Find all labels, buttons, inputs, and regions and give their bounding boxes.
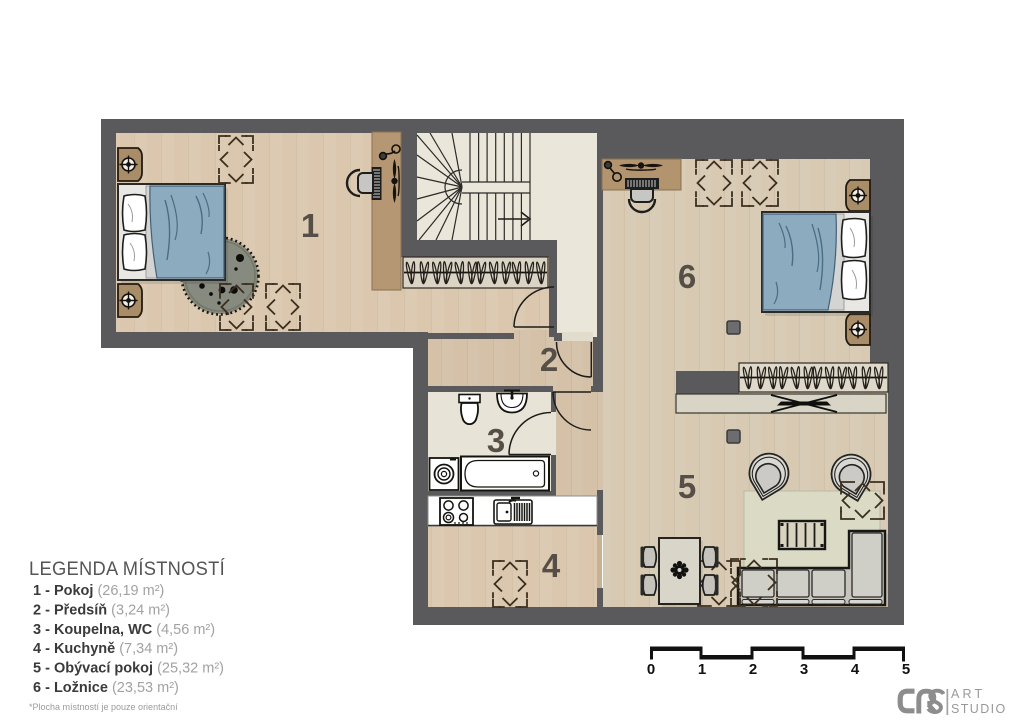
svg-text:5: 5 (678, 468, 696, 505)
svg-text:ART: ART (951, 687, 985, 701)
svg-text:1 - Pokoj (26,19 m²): 1 - Pokoj (26,19 m²) (33, 583, 164, 599)
svg-text:1: 1 (301, 207, 319, 244)
svg-text:6 - Ložnice (23,53 m²): 6 - Ložnice (23,53 m²) (33, 680, 179, 696)
svg-text:3 - Koupelna, WC (4,56 m²): 3 - Koupelna, WC (4,56 m²) (33, 622, 215, 638)
svg-text:6: 6 (678, 258, 696, 295)
svg-text:4 - Kuchyně (7,34 m²): 4 - Kuchyně (7,34 m²) (33, 641, 178, 657)
svg-text:2 - Předsíň (3,24 m²): 2 - Předsíň (3,24 m²) (33, 603, 170, 619)
svg-text:2: 2 (540, 341, 558, 378)
svg-text:STUDIO: STUDIO (951, 702, 1007, 716)
svg-text:5 - Obývací pokoj (25,32 m²): 5 - Obývací pokoj (25,32 m²) (33, 661, 224, 677)
svg-text:LEGENDA MÍSTNOSTÍ: LEGENDA MÍSTNOSTÍ (29, 557, 225, 580)
svg-text:4: 4 (542, 547, 561, 584)
svg-text:0: 0 (647, 661, 655, 678)
svg-text:3: 3 (800, 661, 808, 678)
svg-text:5: 5 (902, 661, 910, 678)
svg-text:2: 2 (749, 661, 757, 678)
svg-text:*Plocha místností je pouze ori: *Plocha místností je pouze orientační (29, 702, 178, 712)
svg-text:1: 1 (698, 661, 706, 678)
svg-text:3: 3 (487, 422, 505, 459)
svg-text:4: 4 (851, 661, 860, 678)
